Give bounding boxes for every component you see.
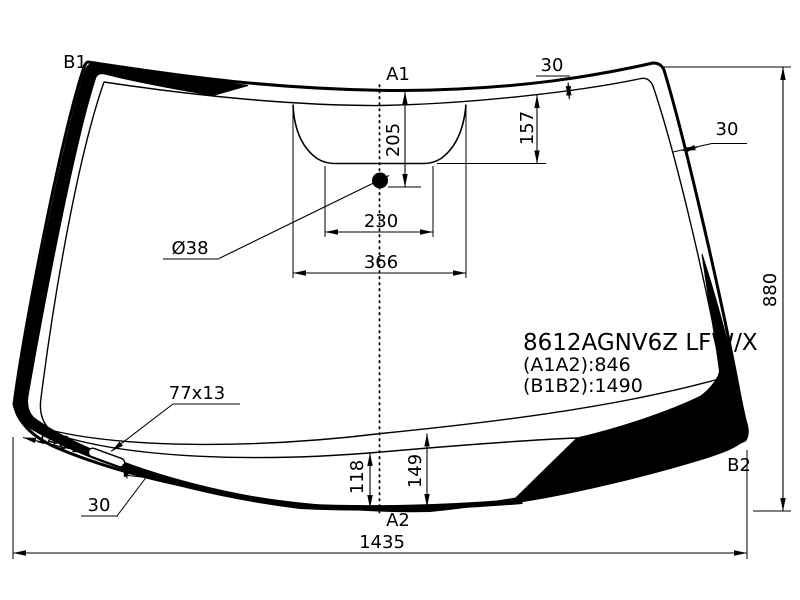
label-a2: A2 <box>386 512 410 530</box>
dim-glass-height: 880 <box>762 273 780 307</box>
dim-sensor-bracket-depth: 157 <box>519 111 537 145</box>
label-a1: A1 <box>386 66 410 84</box>
dim-bottom-band-height-left: 118 <box>349 460 367 494</box>
dim-glass-bottom-width: 1435 <box>359 534 405 552</box>
part-number: 8612AGNV6Z LFW/X <box>523 332 758 355</box>
dim-sensor-center-from-top: 205 <box>385 123 403 157</box>
dim-top-band-width: 30 <box>541 57 564 75</box>
dim-moulding-gap: 30 <box>88 497 111 515</box>
dim-sensor-diameter: Ø38 <box>171 240 208 258</box>
dim-sensor-bracket-top-width: 366 <box>364 254 398 272</box>
dim-a1a2-total: (A1A2):846 <box>523 356 631 375</box>
windshield-dimension-diagram: B1 A1 A2 B2 30 30 157 205 230 366 Ø38 88… <box>0 0 800 600</box>
dim-sensor-bracket-bottom-width: 230 <box>364 213 398 231</box>
dim-b1b2-total: (B1B2):1490 <box>523 377 643 396</box>
dim-right-band-width: 30 <box>716 121 739 139</box>
dim-moulding-size: 77x13 <box>169 385 225 403</box>
dim-bottom-band-height-right: 149 <box>407 454 425 488</box>
label-b2: B2 <box>727 457 751 475</box>
label-b1: B1 <box>63 54 87 72</box>
